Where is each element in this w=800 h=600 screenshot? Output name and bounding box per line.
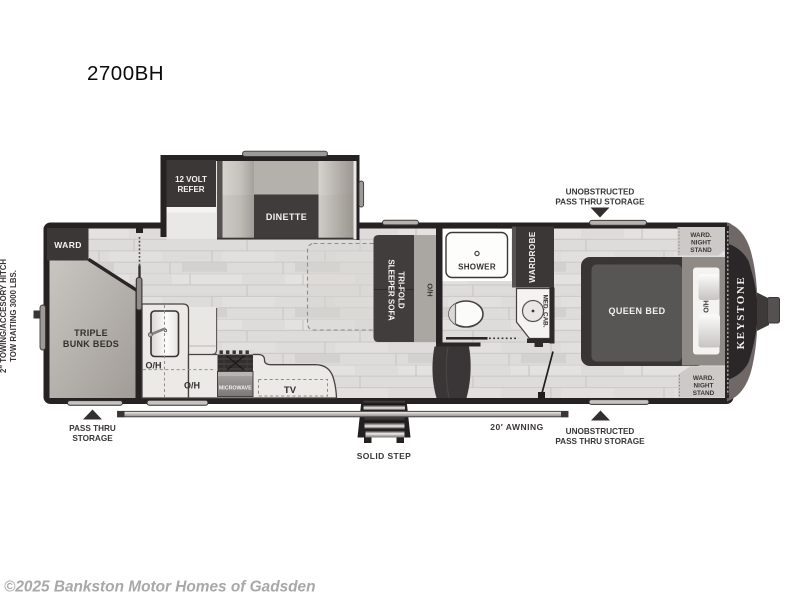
svg-text:20′ AWNING: 20′ AWNING — [490, 422, 543, 432]
svg-text:QUEEN BED: QUEEN BED — [608, 306, 665, 316]
svg-text:MICROWAVE: MICROWAVE — [219, 386, 252, 392]
svg-text:O/H: O/H — [145, 361, 161, 371]
svg-text:STORAGE: STORAGE — [72, 434, 113, 443]
svg-text:TRIPLE: TRIPLE — [74, 328, 108, 338]
svg-text:PASS THRU STORAGE: PASS THRU STORAGE — [555, 198, 645, 207]
svg-text:2700BH: 2700BH — [87, 62, 164, 85]
svg-text:STAND: STAND — [693, 390, 715, 397]
svg-text:WARD.: WARD. — [690, 232, 712, 239]
svg-text:©2025 Bankston Motor Homes of: ©2025 Bankston Motor Homes of Gadsden — [4, 579, 316, 596]
svg-text:O/H: O/H — [704, 300, 711, 312]
svg-text:2″ TOWING/ACCESORY HITCHTOW RA: 2″ TOWING/ACCESORY HITCHTOW RAITING 3000… — [0, 259, 18, 373]
svg-text:WARDROBE: WARDROBE — [528, 231, 537, 283]
svg-text:WARD.: WARD. — [693, 375, 715, 382]
svg-text:NIGHT: NIGHT — [691, 240, 711, 247]
svg-text:O/H: O/H — [426, 283, 435, 296]
svg-text:O/H: O/H — [184, 381, 200, 391]
svg-text:WARD: WARD — [54, 240, 82, 250]
svg-text:SOLID STEP: SOLID STEP — [357, 451, 412, 461]
svg-text:REFER: REFER — [177, 185, 204, 194]
svg-text:UNOBSTRUCTED: UNOBSTRUCTED — [566, 188, 635, 197]
svg-text:SHOWER: SHOWER — [458, 263, 496, 272]
svg-text:NIGHT: NIGHT — [694, 383, 714, 390]
svg-text:UNOBSTRUCTED: UNOBSTRUCTED — [566, 427, 635, 436]
svg-text:DINETTE: DINETTE — [266, 212, 307, 222]
svg-text:KEYSTONE: KEYSTONE — [735, 276, 747, 350]
svg-text:12 VOLT: 12 VOLT — [175, 175, 207, 184]
svg-text:PASS THRU STORAGE: PASS THRU STORAGE — [555, 437, 645, 446]
svg-text:BUNK BEDS: BUNK BEDS — [63, 339, 119, 349]
svg-text:STAND: STAND — [690, 247, 712, 254]
svg-text:PASS THRU: PASS THRU — [69, 424, 116, 433]
svg-text:TV: TV — [284, 385, 297, 396]
svg-text:MED. CAB.: MED. CAB. — [542, 295, 549, 328]
